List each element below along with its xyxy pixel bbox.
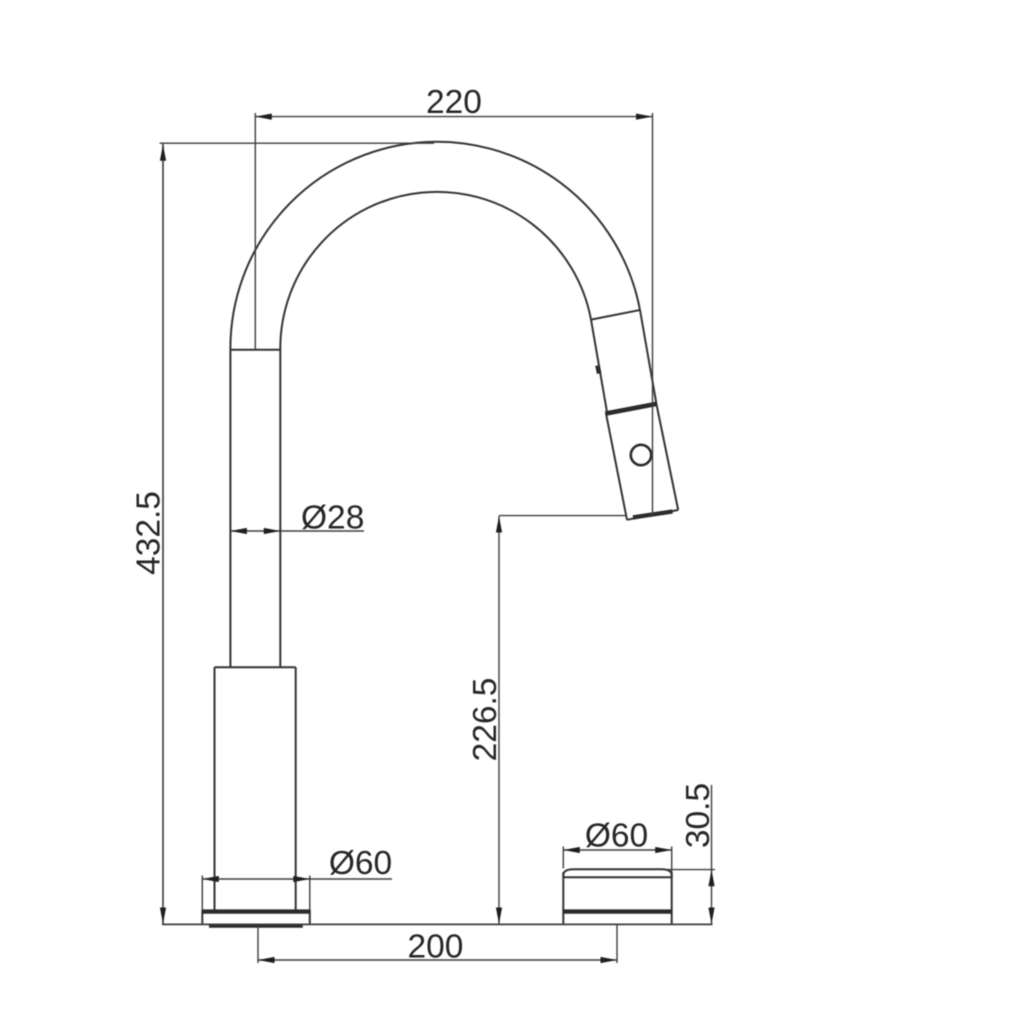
- svg-text:Ø28: Ø28: [301, 500, 364, 537]
- svg-text:Ø60: Ø60: [329, 845, 392, 882]
- svg-text:220: 220: [426, 84, 482, 121]
- svg-text:Ø60: Ø60: [585, 818, 648, 855]
- svg-text:226.5: 226.5: [467, 678, 504, 762]
- svg-text:200: 200: [408, 929, 464, 966]
- svg-text:30.5: 30.5: [680, 783, 717, 848]
- svg-text:432.5: 432.5: [131, 491, 168, 575]
